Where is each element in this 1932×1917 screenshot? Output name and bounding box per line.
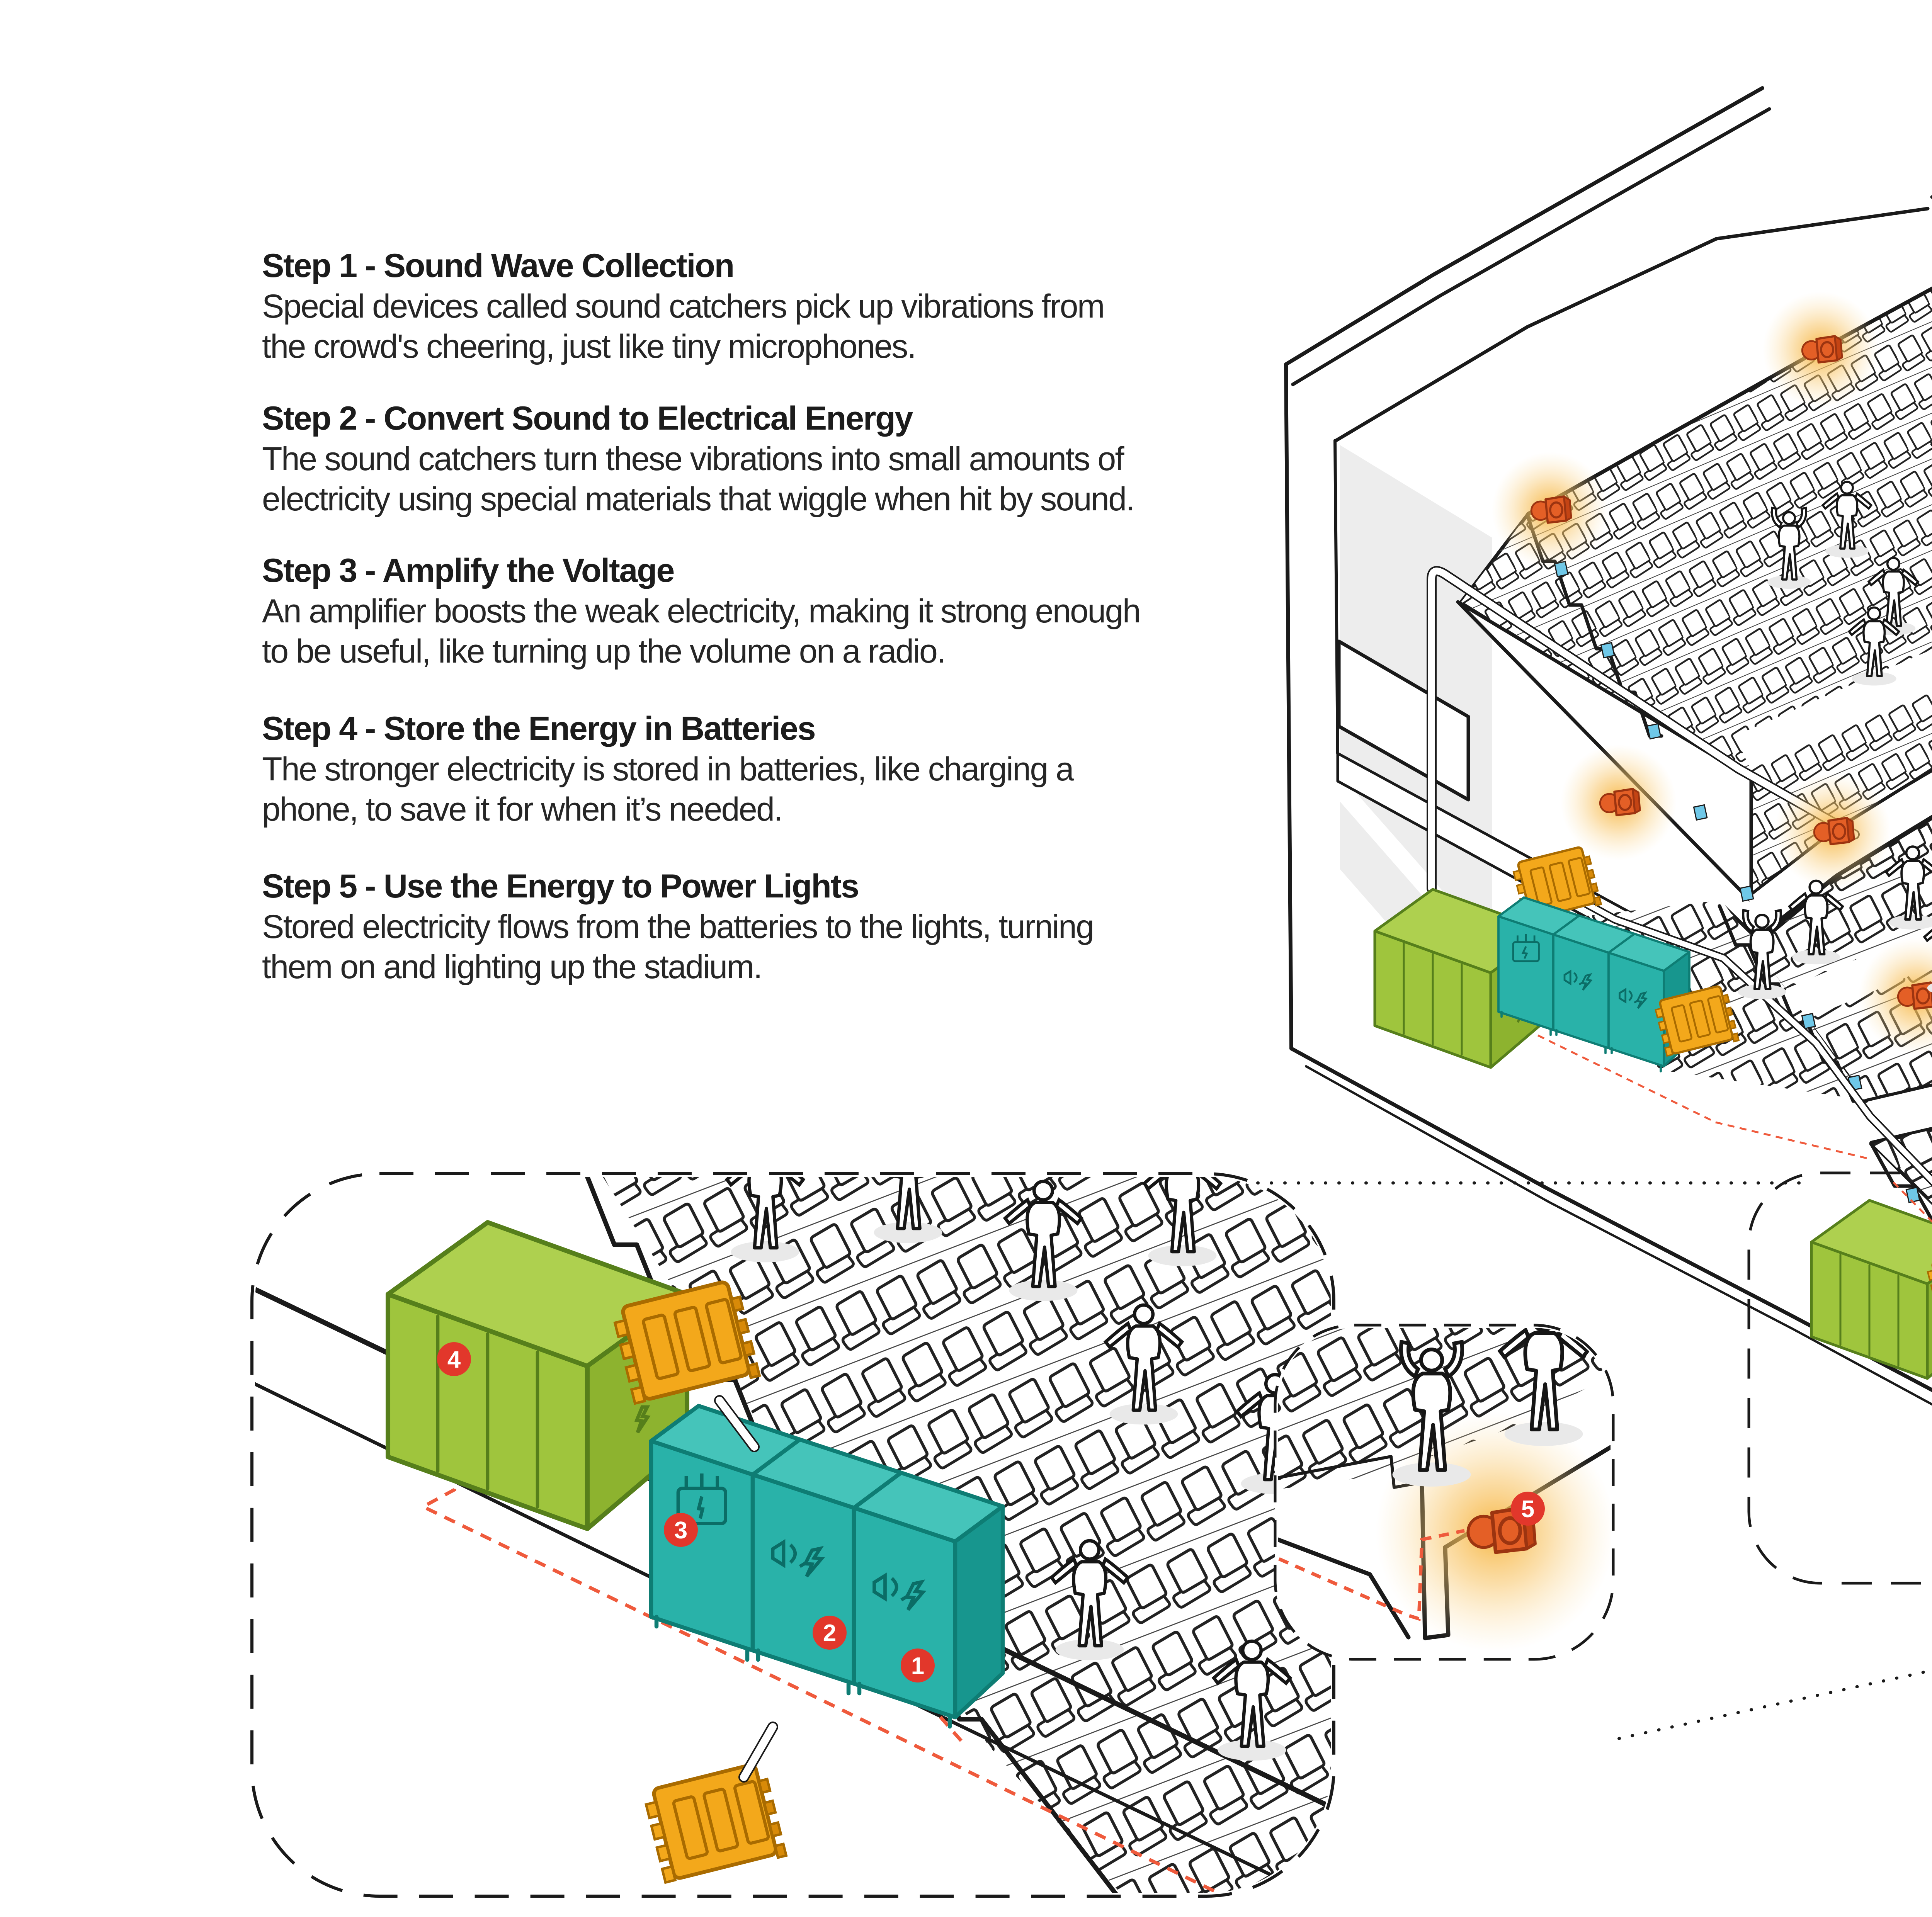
svg-text:3: 3 [674, 1517, 687, 1544]
svg-text:An amplifier boosts the weak e: An amplifier boosts the weak electricity… [262, 593, 1140, 630]
svg-text:Step 3 - Amplify the Voltage: Step 3 - Amplify the Voltage [262, 552, 674, 589]
svg-text:Step 5 - Use the Energy to Pow: Step 5 - Use the Energy to Power Lights [262, 868, 859, 905]
svg-text:them on and lighting up the st: them on and lighting up the stadium. [262, 948, 762, 986]
svg-text:5: 5 [1521, 1496, 1534, 1523]
svg-text:to be useful, like turning up: to be useful, like turning up the volume… [262, 633, 945, 670]
svg-text:phone, to save it for when it’: phone, to save it for when it’s needed. [262, 791, 782, 828]
svg-text:4: 4 [447, 1346, 461, 1373]
svg-text:Step 4 - Store the Energy in B: Step 4 - Store the Energy in Batteries [262, 710, 815, 747]
svg-text:The stronger electricity is st: The stronger electricity is stored in ba… [262, 751, 1074, 788]
svg-text:Step 2 - Convert Sound to Elec: Step 2 - Convert Sound to Electrical Ene… [262, 400, 913, 437]
svg-text:Step 1 - Sound Wave Collection: Step 1 - Sound Wave Collection [262, 247, 734, 284]
svg-text:Stored electricity flows from: Stored electricity flows from the batter… [262, 908, 1093, 945]
svg-text:1: 1 [911, 1653, 924, 1679]
svg-text:The sound catchers turn these: The sound catchers turn these vibrations… [262, 440, 1125, 478]
svg-text:Special devices called sound c: Special devices called sound catchers pi… [262, 288, 1104, 325]
svg-text:electricity using special mate: electricity using special materials that… [262, 481, 1134, 518]
svg-text:the crowd's cheering, just lik: the crowd's cheering, just like tiny mic… [262, 328, 915, 365]
svg-text:2: 2 [823, 1620, 836, 1647]
